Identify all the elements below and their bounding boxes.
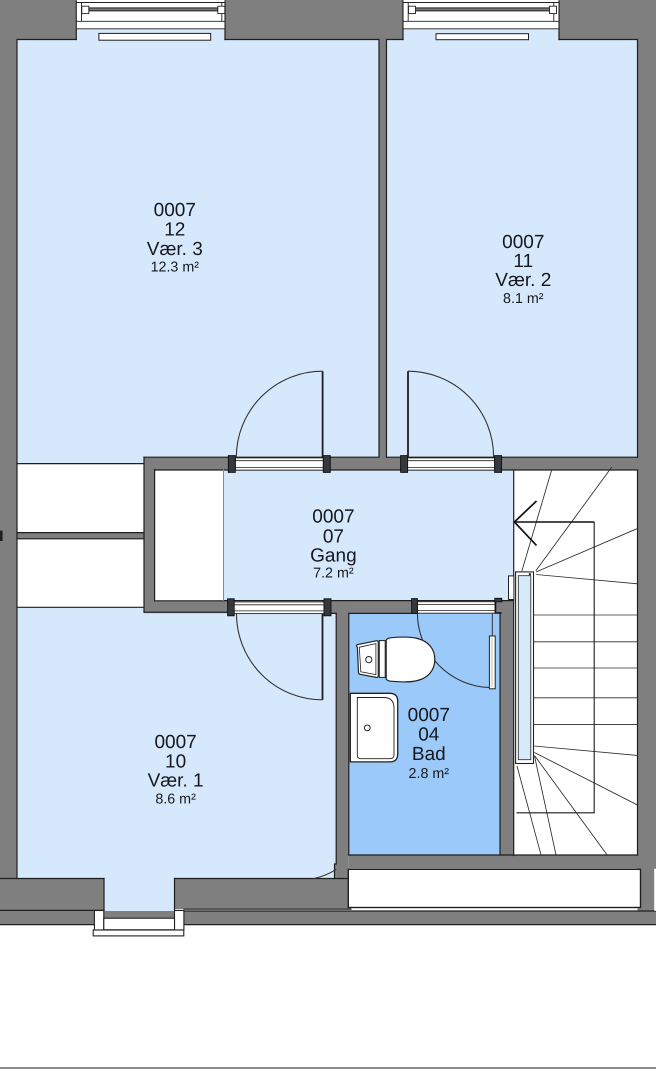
svg-text:Gang: Gang (310, 546, 356, 567)
svg-text:2.8 m²: 2.8 m² (409, 766, 450, 782)
svg-text:0007: 0007 (408, 705, 450, 726)
svg-text:8.1 m²: 8.1 m² (503, 291, 544, 307)
svg-text:10: 10 (165, 751, 186, 772)
svg-text:12.3 m²: 12.3 m² (151, 260, 200, 276)
svg-text:8.6 m²: 8.6 m² (155, 791, 196, 807)
svg-text:Bad: Bad (412, 744, 446, 765)
svg-text:0007: 0007 (154, 732, 196, 753)
svg-text:7.2 m²: 7.2 m² (313, 566, 354, 582)
svg-text:0007: 0007 (502, 232, 544, 253)
svg-text:0007: 0007 (312, 507, 354, 528)
svg-text:Vær. 3: Vær. 3 (147, 239, 203, 260)
svg-text:12: 12 (164, 219, 185, 240)
svg-text:Vær. 1: Vær. 1 (148, 771, 204, 792)
svg-text:0007: 0007 (154, 200, 196, 221)
svg-text:07: 07 (323, 526, 344, 547)
svg-text:04: 04 (418, 724, 440, 745)
svg-text:Vær. 2: Vær. 2 (495, 270, 551, 291)
